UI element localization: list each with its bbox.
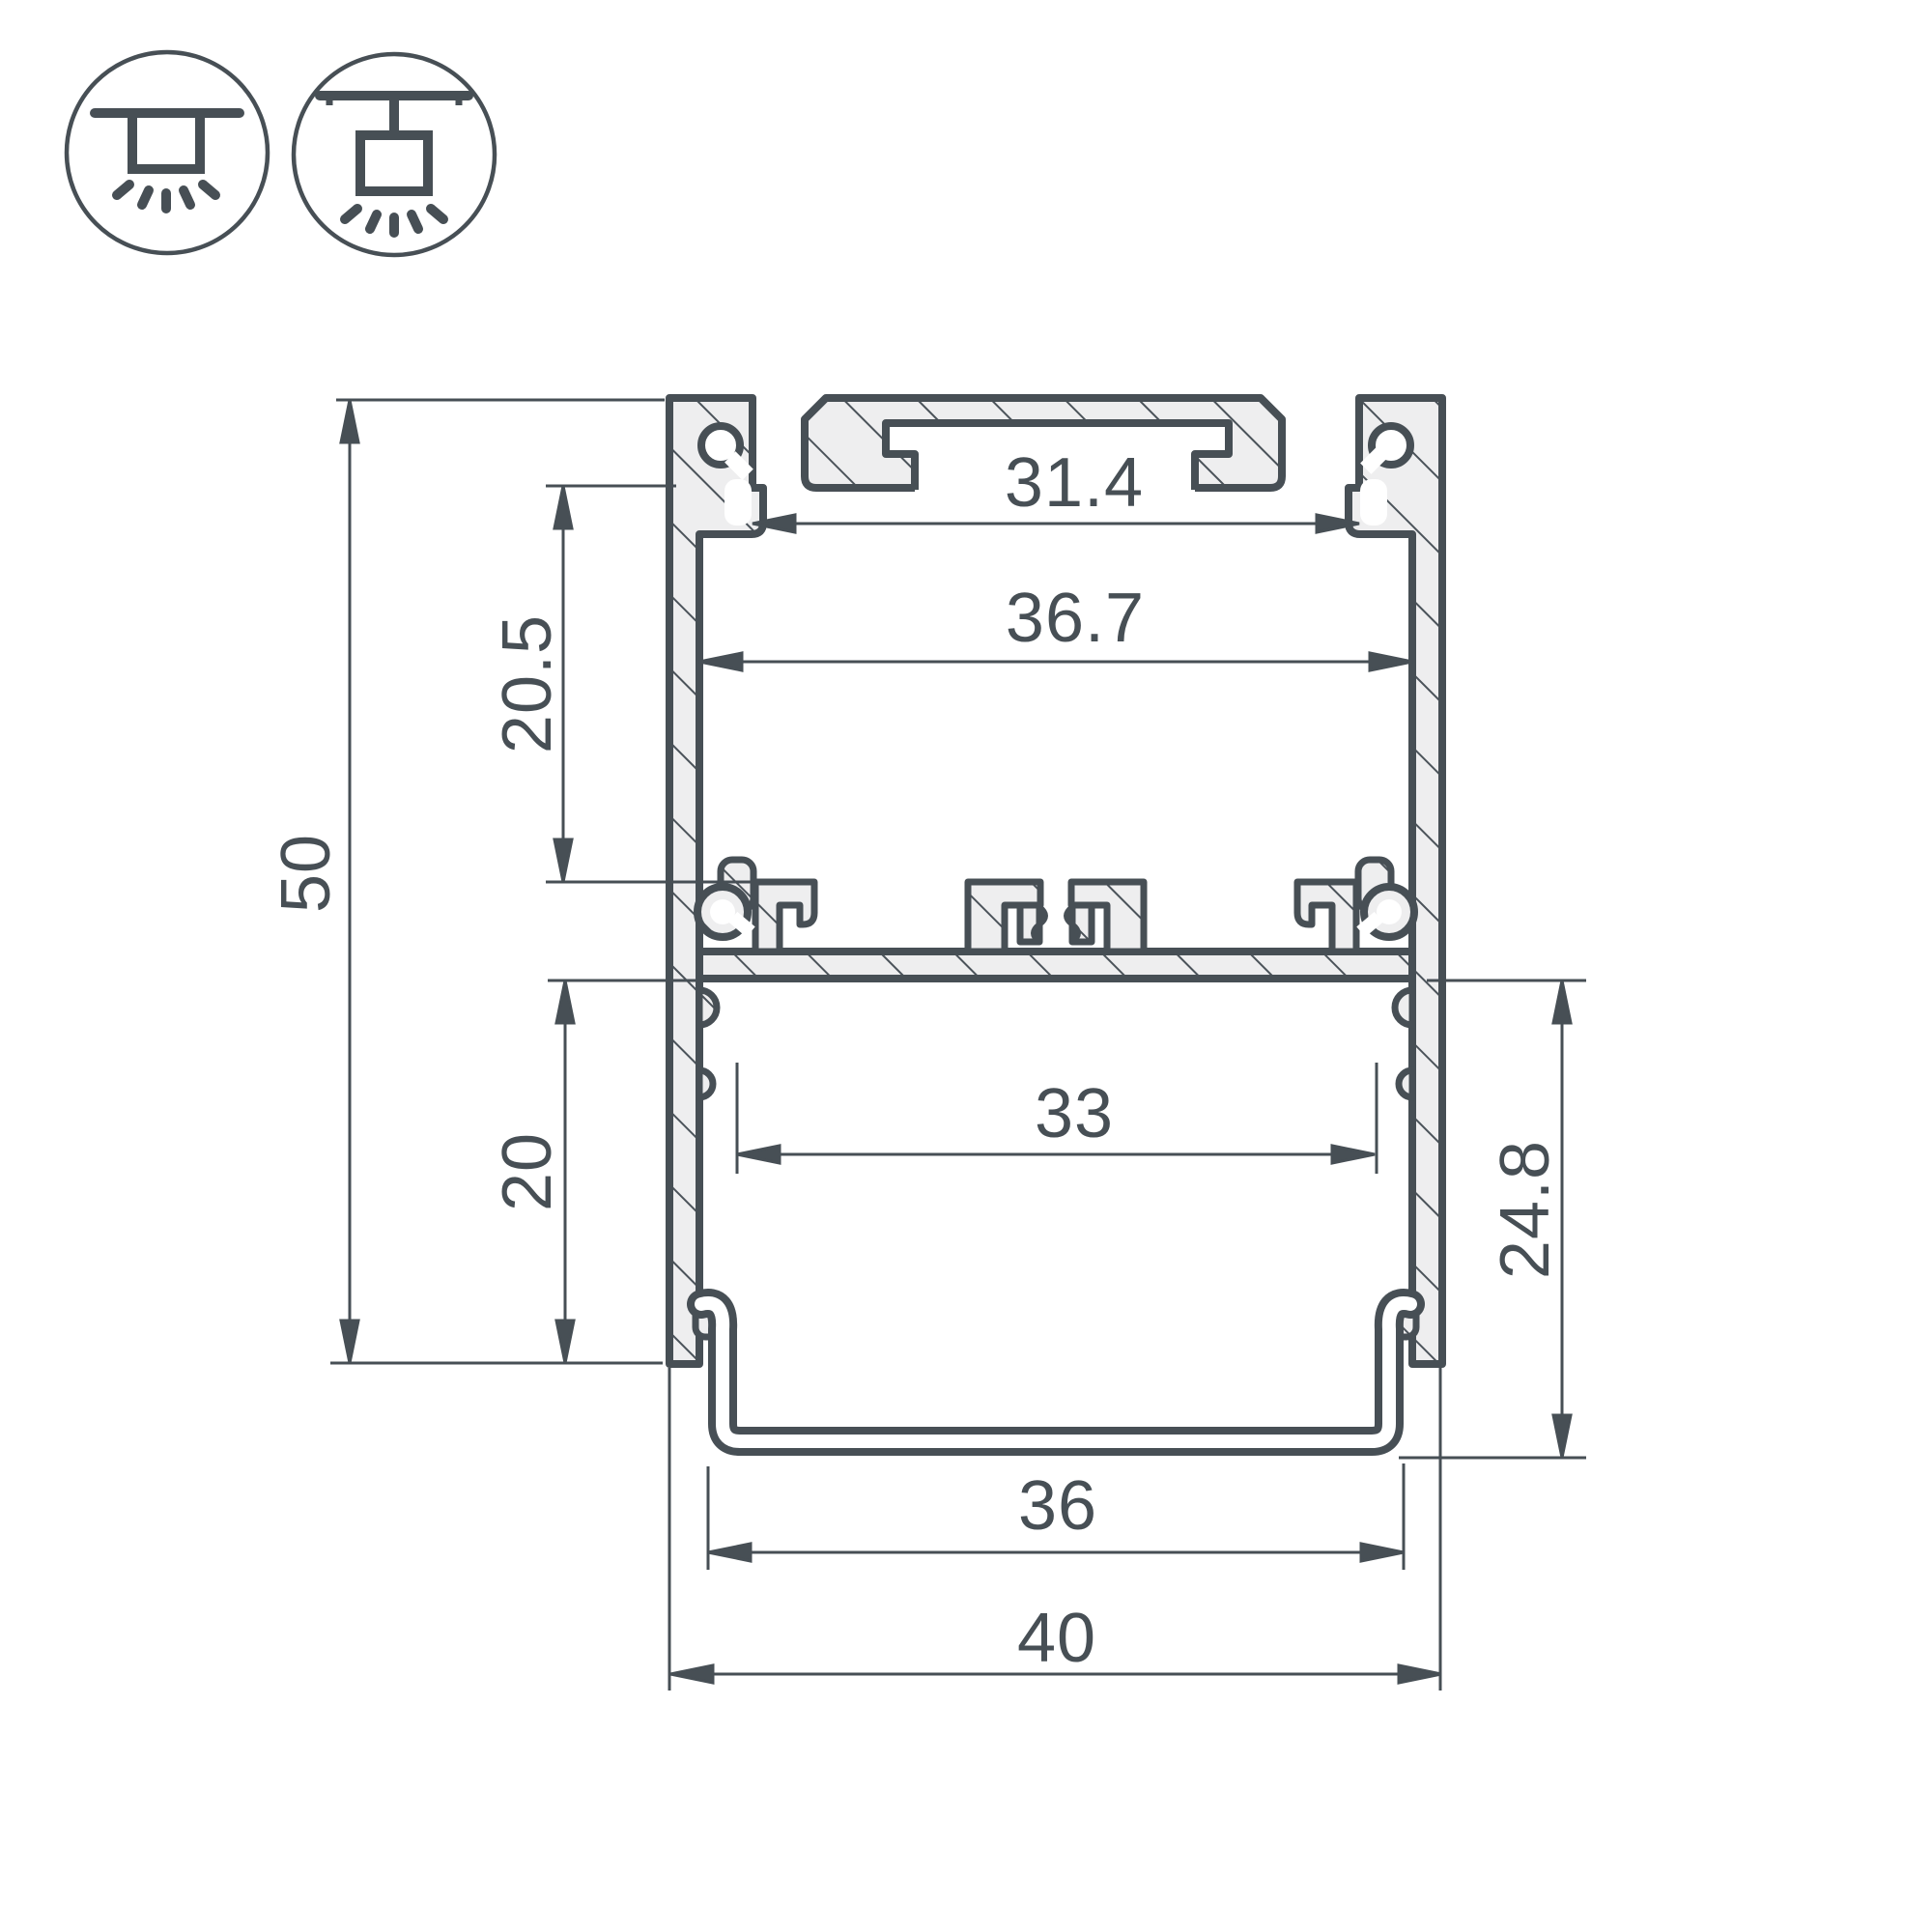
arrowhead <box>1361 1544 1404 1561</box>
clip-bump-right-1 <box>1395 990 1412 1025</box>
drawing-page: 31.4 36.7 20.5 50 <box>0 0 1932 1932</box>
arrowhead <box>699 653 742 670</box>
arrowhead <box>670 1665 713 1683</box>
tape-slot-left <box>724 479 752 526</box>
arrowhead <box>556 1321 574 1363</box>
dim-label-diffuser-inner-width: 33 <box>1035 1075 1114 1152</box>
arrowhead <box>1370 653 1412 670</box>
shelf-finger-right <box>1297 882 1356 952</box>
arrowhead <box>1553 980 1571 1023</box>
arrowhead <box>737 1146 780 1163</box>
lamp-box <box>132 113 200 169</box>
icon-circle <box>67 52 268 253</box>
dim-upper-channel-depth: 20.5 <box>489 486 755 882</box>
dim-label-diffuser-section-height: 24.8 <box>1487 1140 1564 1279</box>
dim-diffuser-inner-width: 33 <box>737 1063 1377 1174</box>
arrowhead <box>341 1321 358 1363</box>
dimensions: 31.4 36.7 20.5 50 <box>268 400 1586 1690</box>
dim-label-overall-height: 50 <box>268 834 345 913</box>
shelf-finger-left <box>755 882 814 952</box>
arrowhead <box>554 839 572 882</box>
arrowhead <box>341 400 358 442</box>
clip-bump-right-2 <box>1399 1070 1412 1097</box>
dim-inner-width: 36.7 <box>699 580 1412 670</box>
diffuser-outer <box>701 1303 1410 1441</box>
tape-slot-right <box>1360 479 1387 526</box>
dim-diffuser-outer-width: 36 <box>708 1463 1404 1570</box>
dim-label-upper-channel-depth: 20.5 <box>489 614 566 753</box>
dim-label-overall-width: 40 <box>1017 1600 1096 1677</box>
diffuser <box>701 1303 1410 1441</box>
arrowhead <box>556 980 574 1023</box>
dim-label-top-slot-width: 31.4 <box>1005 444 1144 522</box>
pendant-mount-icon <box>294 54 495 255</box>
aluminum-profile <box>669 398 1442 1364</box>
arrowhead <box>1332 1146 1375 1163</box>
dim-label-lower-channel-depth: 20 <box>489 1132 566 1211</box>
arrowhead <box>708 1544 751 1561</box>
light-rays <box>345 209 443 233</box>
lamp-box <box>360 135 428 191</box>
dim-label-inner-width: 36.7 <box>1006 580 1145 657</box>
mount-icons <box>67 52 495 255</box>
surface-mount-icon <box>67 52 268 253</box>
arrowhead <box>1399 1665 1441 1683</box>
arrowhead <box>1553 1415 1571 1458</box>
led-shelf <box>699 952 1412 979</box>
arrowhead <box>554 486 572 528</box>
clip-bump-left-1 <box>699 990 717 1025</box>
dim-label-diffuser-outer-width: 36 <box>1018 1467 1097 1545</box>
diffuser-inner-gap <box>701 1303 1410 1441</box>
light-rays <box>117 185 215 209</box>
clip-bump-left-2 <box>699 1070 713 1097</box>
profile-cross-section-drawing: 31.4 36.7 20.5 50 <box>0 0 1932 1932</box>
